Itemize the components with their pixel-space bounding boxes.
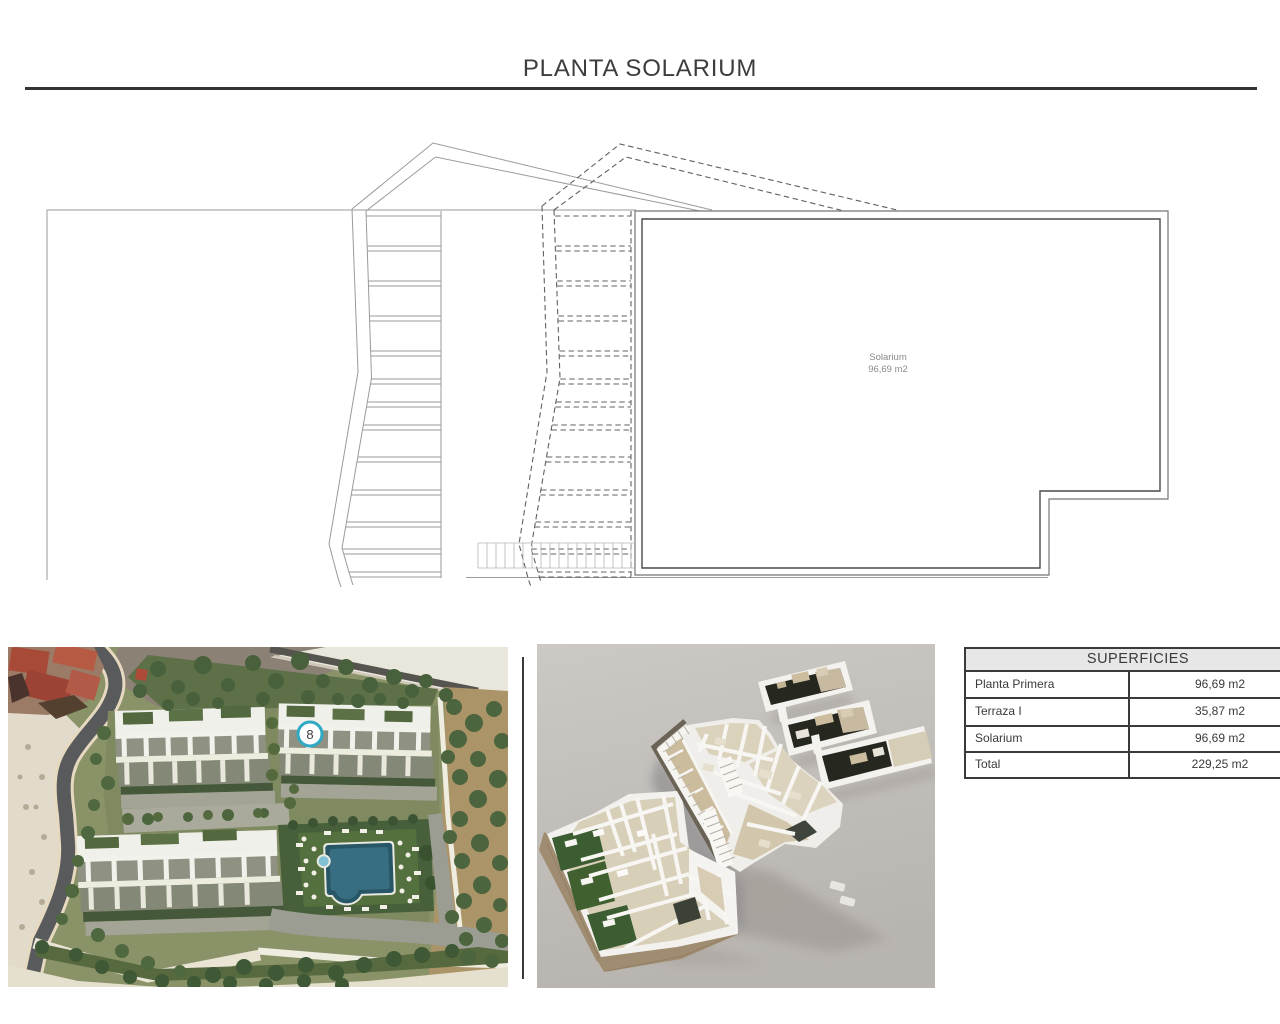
svg-text:Solarium: Solarium <box>869 352 907 363</box>
svg-text:8: 8 <box>306 727 313 742</box>
svg-text:96,69 m2: 96,69 m2 <box>868 364 908 375</box>
